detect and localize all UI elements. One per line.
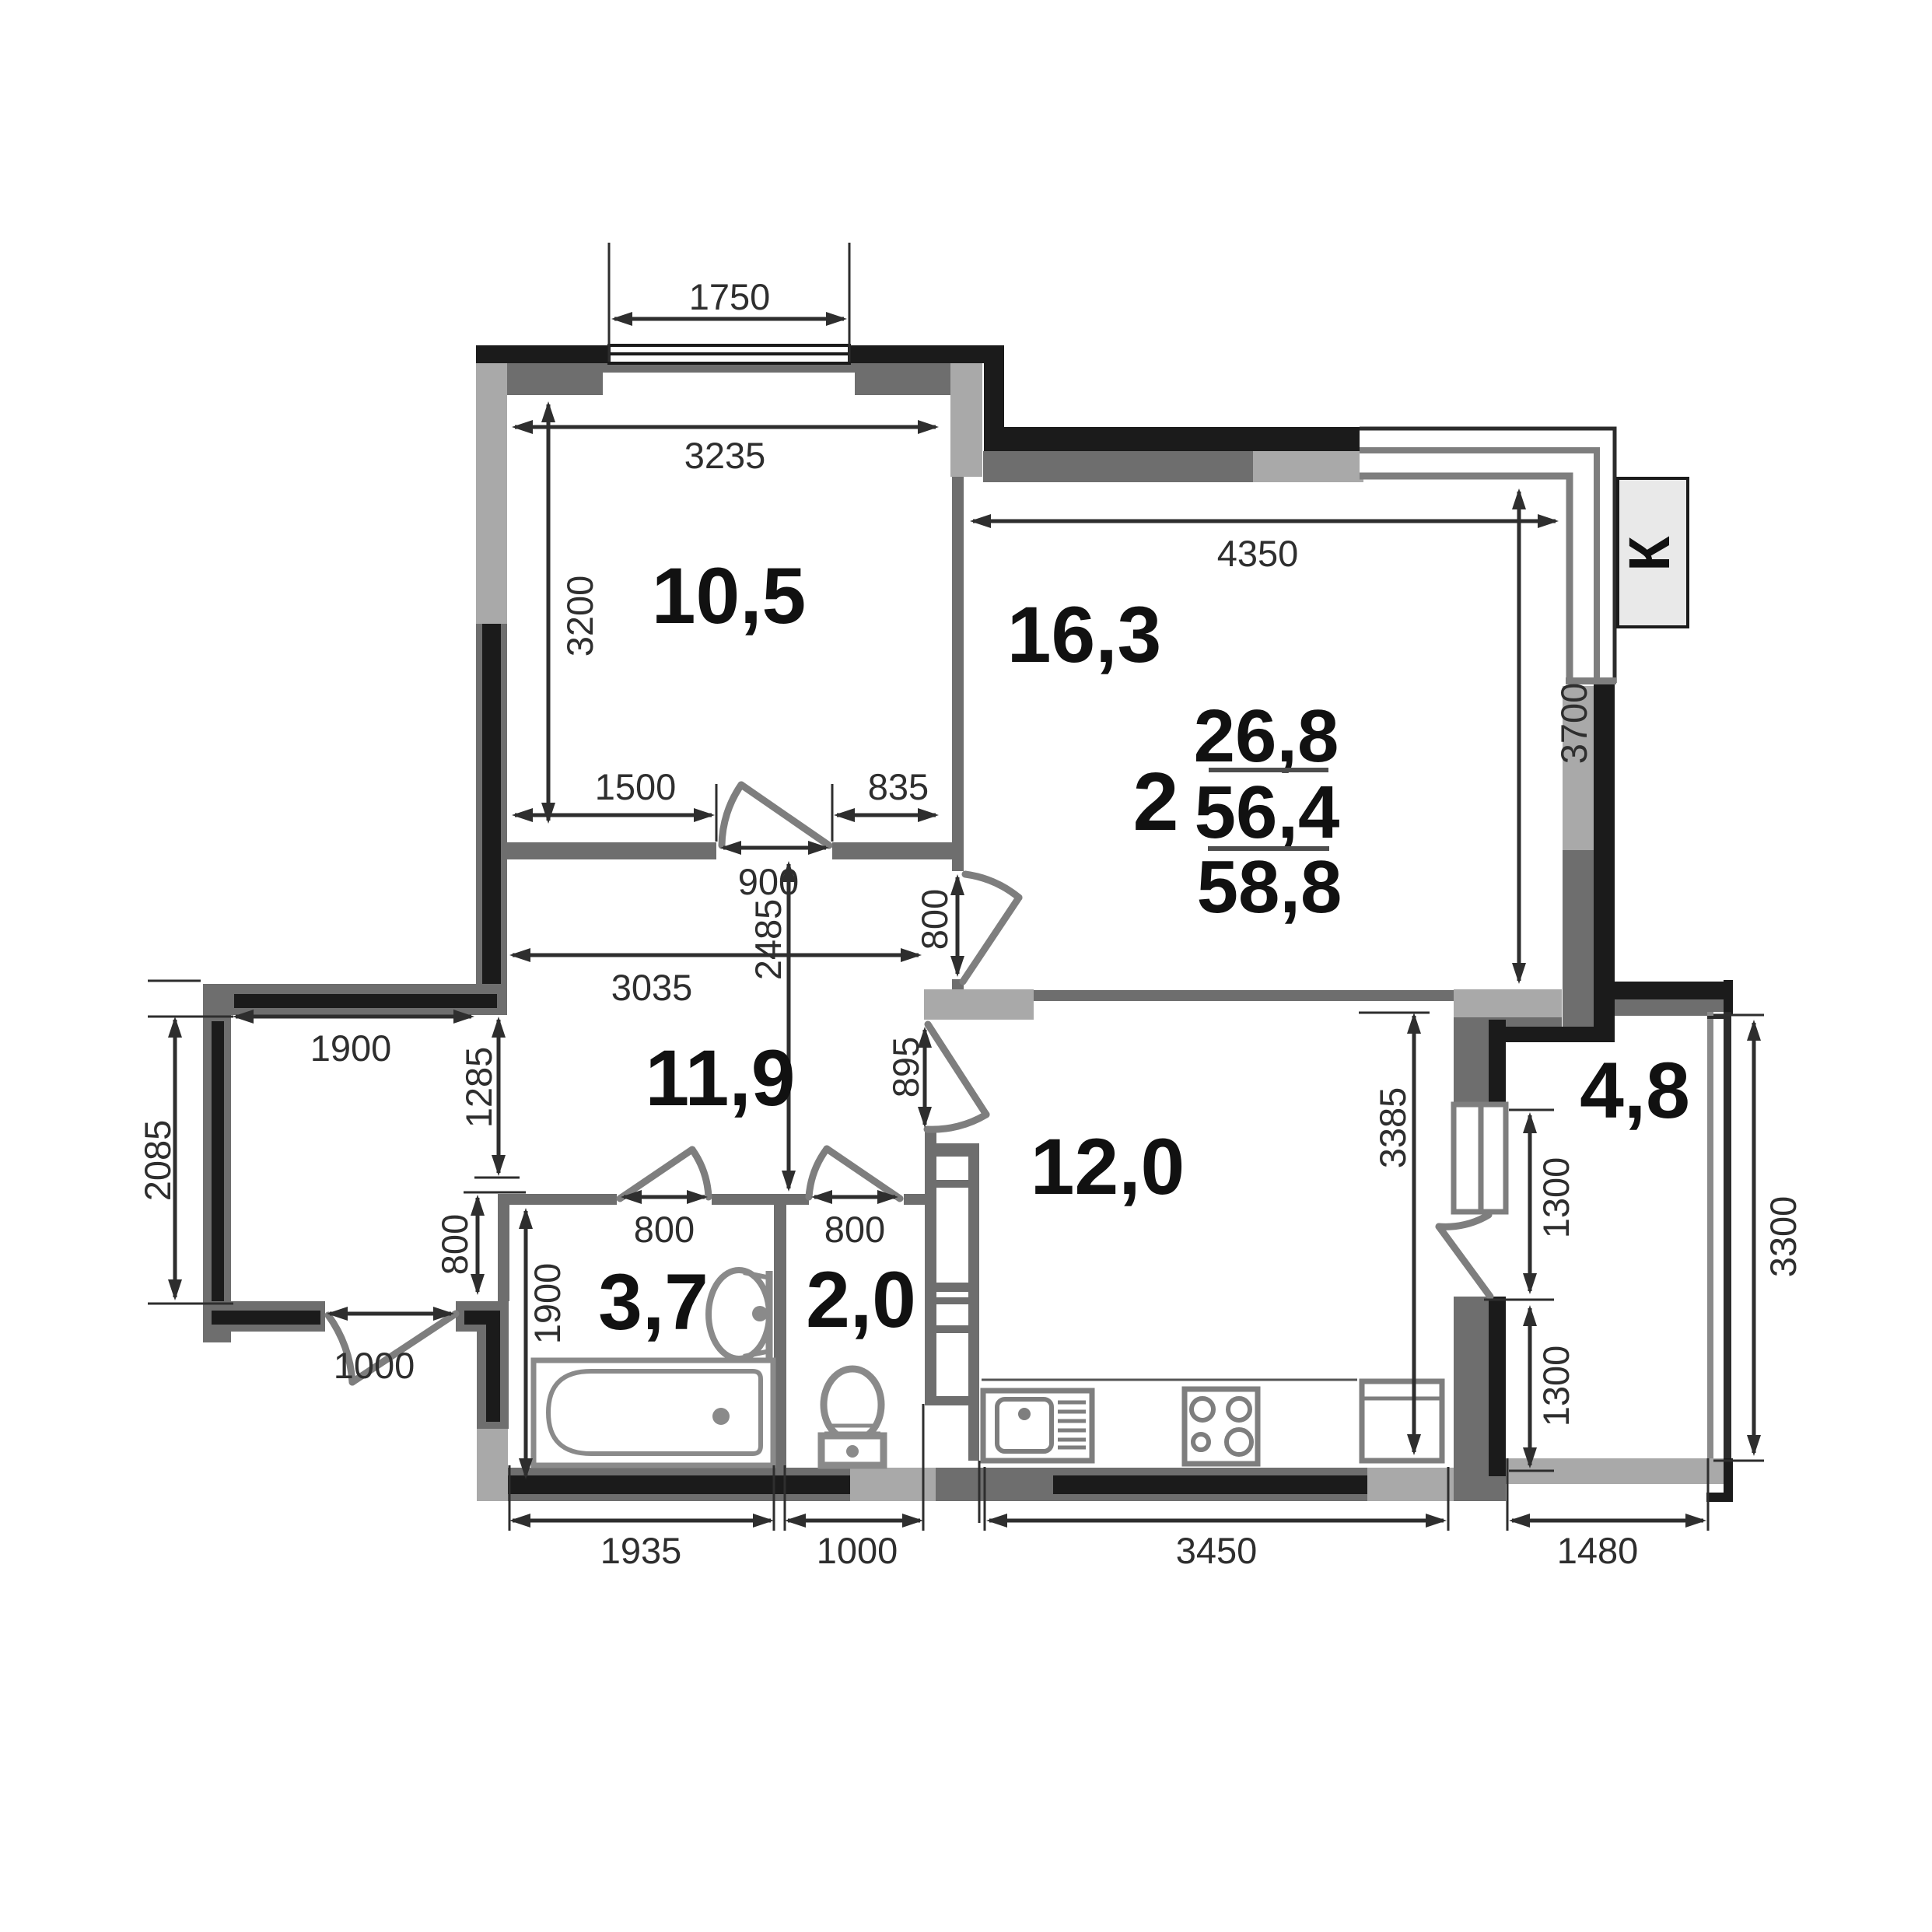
svg-text:800: 800 <box>914 889 955 950</box>
svg-text:58,8: 58,8 <box>1197 845 1342 929</box>
svg-text:12,0: 12,0 <box>1031 1122 1185 1211</box>
svg-text:11,9: 11,9 <box>646 1034 796 1122</box>
svg-text:1300: 1300 <box>1535 1157 1577 1239</box>
svg-text:1900: 1900 <box>310 1027 392 1069</box>
svg-text:800: 800 <box>634 1209 695 1250</box>
svg-text:4350: 4350 <box>1217 533 1299 574</box>
svg-text:800: 800 <box>824 1209 885 1250</box>
svg-text:895: 895 <box>885 1037 926 1097</box>
svg-text:1900: 1900 <box>527 1263 568 1345</box>
svg-text:3035: 3035 <box>611 967 693 1008</box>
svg-text:1000: 1000 <box>334 1345 415 1386</box>
svg-text:2085: 2085 <box>137 1120 178 1202</box>
svg-text:1480: 1480 <box>1557 1530 1639 1571</box>
svg-text:К: К <box>1617 536 1682 572</box>
svg-text:10,5: 10,5 <box>652 551 807 640</box>
svg-text:3300: 3300 <box>1762 1196 1804 1278</box>
svg-text:56,4: 56,4 <box>1195 771 1340 854</box>
svg-text:1285: 1285 <box>458 1047 499 1129</box>
svg-text:835: 835 <box>868 766 929 807</box>
svg-text:1300: 1300 <box>1535 1346 1577 1427</box>
svg-text:1000: 1000 <box>817 1530 898 1571</box>
svg-text:3235: 3235 <box>684 435 766 476</box>
svg-text:3700: 3700 <box>1553 683 1594 765</box>
svg-text:26,8: 26,8 <box>1194 695 1339 778</box>
svg-text:1750: 1750 <box>689 276 771 317</box>
svg-text:1500: 1500 <box>595 766 677 807</box>
svg-text:3450: 3450 <box>1176 1530 1258 1571</box>
svg-text:2,0: 2,0 <box>806 1255 916 1344</box>
svg-text:2: 2 <box>1133 756 1179 848</box>
svg-text:4,8: 4,8 <box>1580 1046 1690 1135</box>
svg-text:2485: 2485 <box>747 899 789 981</box>
svg-text:3,7: 3,7 <box>598 1258 709 1346</box>
svg-text:3385: 3385 <box>1372 1087 1413 1169</box>
svg-text:3200: 3200 <box>559 576 600 657</box>
svg-text:16,3: 16,3 <box>1007 590 1162 679</box>
svg-text:800: 800 <box>434 1214 475 1275</box>
svg-text:1935: 1935 <box>600 1530 682 1571</box>
